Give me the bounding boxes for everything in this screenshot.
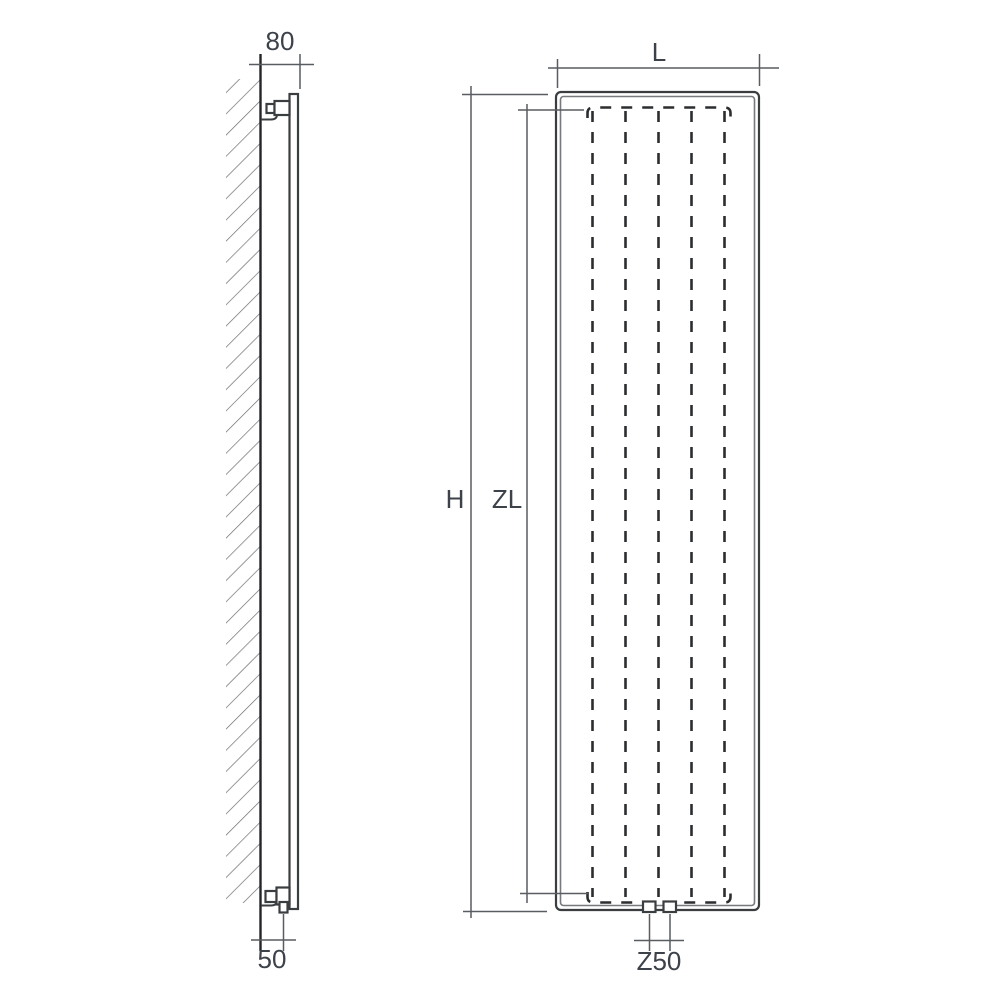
radiator-side-panel (290, 94, 299, 909)
front-view: L H ZL Z50 (446, 37, 779, 976)
bracket-wall-plate (267, 104, 275, 113)
nozzle-right (664, 902, 677, 913)
dimension-connection-Z50: Z50 (634, 914, 684, 976)
dimension-label-width: L (652, 37, 666, 67)
dimension-width-L: L (548, 37, 779, 88)
side-view: 80 50 (226, 26, 314, 974)
top-mounting-bracket (261, 101, 290, 120)
nozzle-left (643, 902, 656, 913)
connection-stub (280, 902, 288, 913)
dimension-label-connection: Z50 (637, 946, 682, 976)
bottom-mounting-bracket (261, 888, 290, 913)
dimension-label-height: H (446, 484, 465, 514)
dimension-label-clearance: 50 (258, 944, 287, 974)
dimension-label-depth: 80 (266, 26, 295, 56)
dimension-clearance-50: 50 (251, 914, 296, 974)
dimension-label-center-length: ZL (492, 484, 522, 514)
wall-hatching (226, 79, 260, 903)
bracket-wall-plate (266, 891, 277, 902)
radiator-technical-drawing: 80 50 (0, 0, 1000, 1000)
bracket-body (275, 101, 290, 115)
